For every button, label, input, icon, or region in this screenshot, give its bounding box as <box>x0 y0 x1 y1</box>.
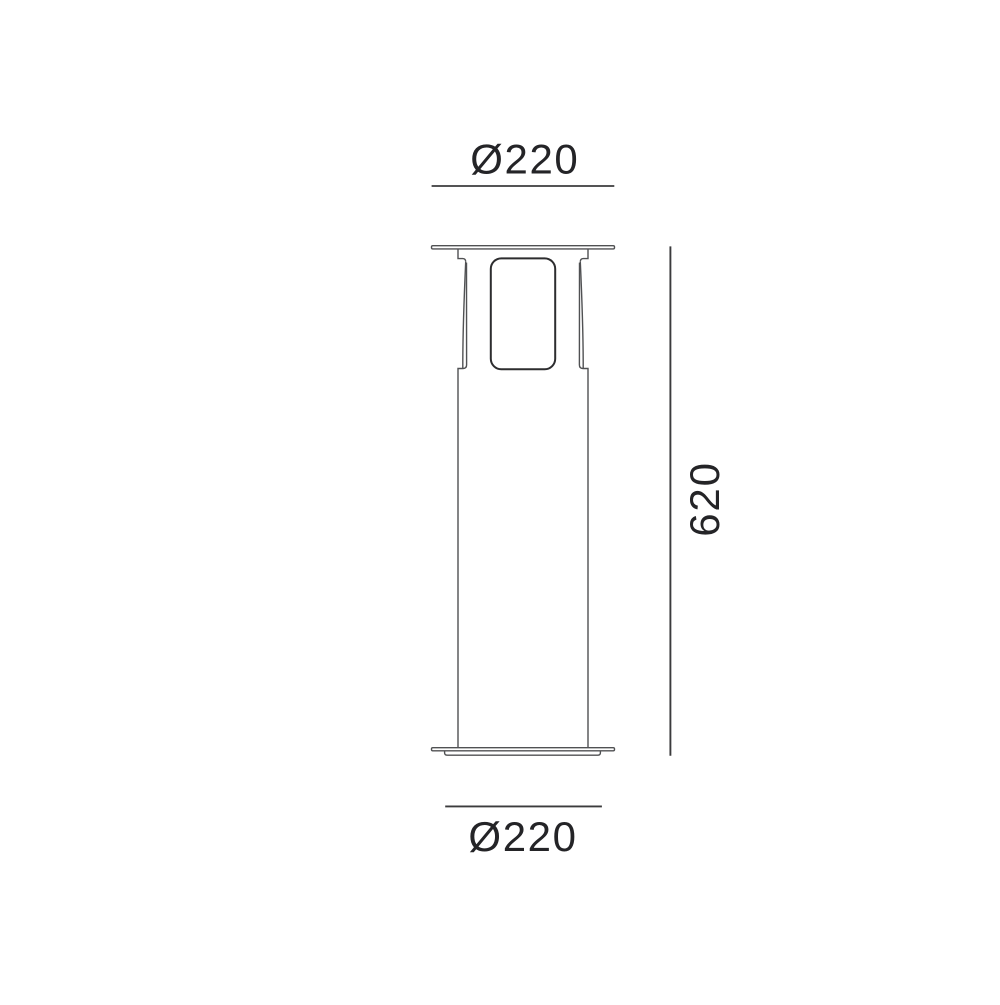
svg-text:Ø220: Ø220 <box>470 136 579 183</box>
svg-text:Ø220: Ø220 <box>468 813 577 860</box>
svg-text:620: 620 <box>681 461 728 536</box>
